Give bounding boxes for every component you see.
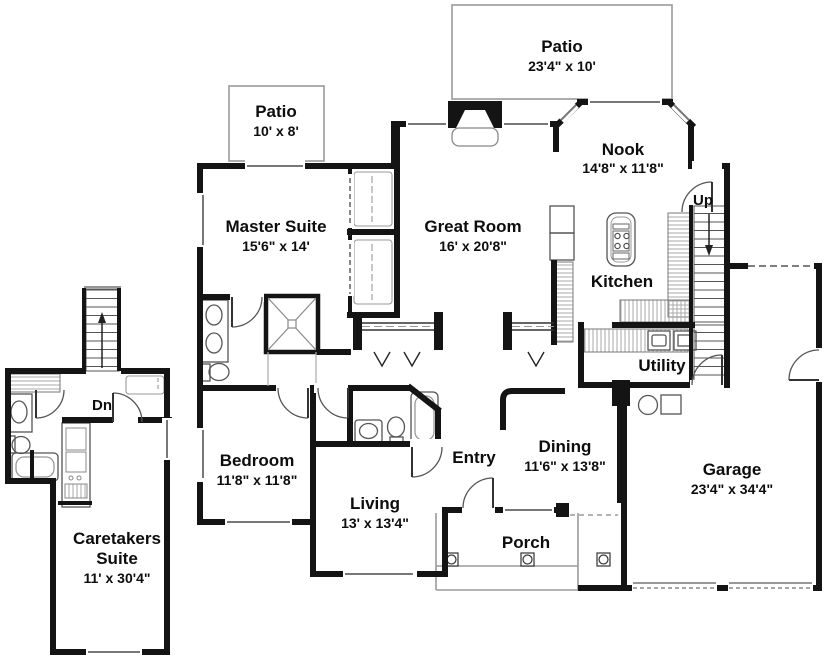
- label-bedroom-dims: 11'8" x 11'8": [217, 472, 298, 488]
- great-room-rails: [362, 323, 554, 366]
- floor-plan-canvas: Patio 23'4" x 10' Patio 10' x 8' Nook 14…: [0, 0, 840, 664]
- dining-ne-post: [612, 380, 630, 406]
- floor-plan-page: Patio 23'4" x 10' Patio 10' x 8' Nook 14…: [0, 0, 840, 664]
- kitchen-counter-west: [556, 262, 573, 342]
- label-bedroom-name: Bedroom: [220, 451, 295, 470]
- label-porch-name: Porch: [502, 533, 550, 552]
- caretakers-bath-sink: [8, 394, 32, 432]
- label-stairs-up: Up: [693, 192, 713, 209]
- dining-se-post: [556, 503, 569, 517]
- label-living-dims: 13' x 13'4": [341, 515, 409, 531]
- caretakers-bath-toilet: [8, 436, 30, 454]
- label-utility-name: Utility: [638, 356, 686, 375]
- caretakers-bath-tub: [12, 453, 58, 481]
- label-garage-name: Garage: [703, 460, 762, 479]
- windows: [86, 97, 689, 658]
- kitchen-counter-south: [620, 300, 692, 322]
- label-caretakers-name-2: Suite: [96, 549, 138, 568]
- label-kitchen-name: Kitchen: [591, 272, 653, 291]
- master-bath-vanity: [200, 300, 228, 362]
- hall-bath-sink: [355, 420, 382, 443]
- stairs-down: [84, 287, 121, 371]
- porch-columns: [445, 553, 610, 566]
- label-dining-name: Dining: [539, 437, 592, 456]
- label-patio-main-dims: 23'4" x 10': [528, 58, 596, 74]
- label-great-room-name: Great Room: [424, 217, 521, 236]
- fireplace: [448, 101, 502, 146]
- label-garage-dims: 23'4" x 34'4": [691, 481, 773, 497]
- utility-sink: [648, 331, 670, 350]
- garage-laundry-tub: [639, 396, 658, 415]
- caretakers-linen: [10, 374, 60, 392]
- garage-water-heater: [661, 395, 681, 414]
- caretakers-landing-closet: [126, 376, 164, 394]
- label-master-suite-dims: 15'6" x 14': [242, 238, 310, 254]
- master-bath-toilet: [202, 364, 229, 382]
- label-patio-master-dims: 10' x 8': [253, 123, 299, 139]
- label-patio-main-name: Patio: [541, 37, 583, 56]
- label-patio-master-name: Patio: [255, 102, 297, 121]
- column-chevrons: [374, 352, 544, 366]
- utility-counter: [584, 329, 688, 352]
- hall-bath-toilet: [388, 417, 405, 443]
- label-caretakers-name-1: Caretakers: [73, 529, 161, 548]
- master-closet-shelves: [354, 172, 392, 304]
- label-stairs-down: Dn: [92, 397, 112, 414]
- label-great-room-dims: 16' x 20'8": [439, 238, 507, 254]
- kitchen-island-stove: [607, 213, 635, 266]
- label-nook-dims: 14'8" x 11'8": [582, 160, 663, 176]
- caretakers-wardrobe: [62, 423, 90, 507]
- label-dining-dims: 11'6" x 13'8": [524, 458, 605, 474]
- label-nook-name: Nook: [602, 140, 645, 159]
- kitchen-fridge: [550, 206, 574, 260]
- label-living-name: Living: [350, 494, 400, 513]
- label-caretakers-dims: 11' x 30'4": [83, 570, 150, 586]
- master-shower: [266, 296, 318, 386]
- label-entry-name: Entry: [452, 448, 496, 467]
- label-master-suite-name: Master Suite: [225, 217, 326, 236]
